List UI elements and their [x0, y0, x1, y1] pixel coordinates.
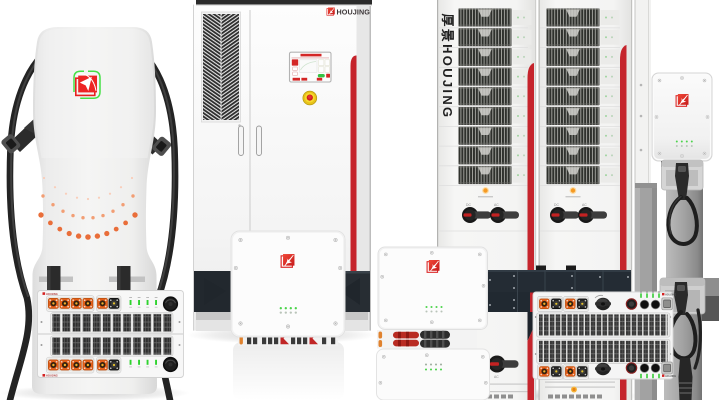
svg-text:HOUJING: HOUJING [46, 374, 58, 378]
svg-text:HOUJING: HOUJING [46, 292, 58, 296]
svg-text:DC: DC [554, 203, 559, 207]
svg-text:HOUJING: HOUJING [665, 293, 676, 296]
svg-text:DC: DC [466, 203, 471, 207]
svg-text:AC: AC [494, 375, 499, 379]
svg-text:AC: AC [582, 203, 587, 207]
svg-text:HOUJING: HOUJING [337, 8, 371, 17]
svg-text:AC: AC [494, 203, 499, 207]
svg-text:厚景HOUJING: 厚景HOUJING [440, 14, 455, 120]
svg-text:HOUJING: HOUJING [665, 375, 676, 378]
